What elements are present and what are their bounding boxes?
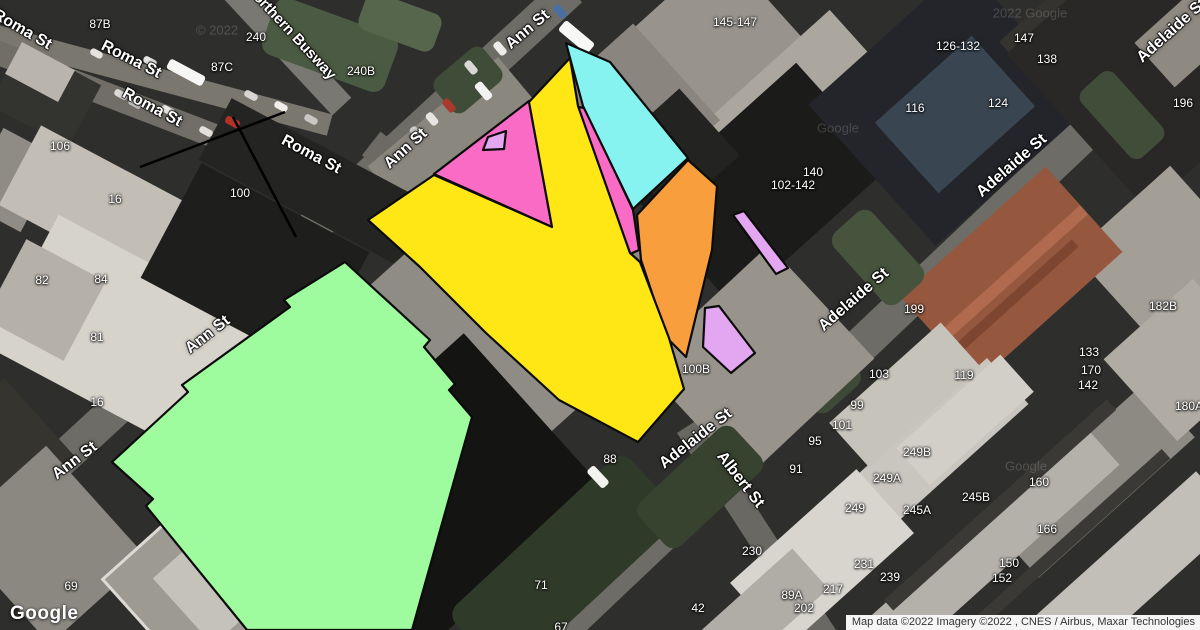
parcel-green[interactable] [112,262,472,630]
parcel-violet-pentagon[interactable] [703,306,755,373]
attribution-text: Map data ©2022 Imagery ©2022 , CNES / Ai… [852,616,1195,628]
google-logo[interactable]: Google [10,603,78,625]
satellite-map[interactable]: Google Map data ©2022 Imagery ©2022 , CN… [0,0,1200,630]
parcel-overlay [0,0,1200,630]
boundary-line [233,117,296,237]
boundary-line [140,112,285,167]
parcel-violet-strip[interactable] [733,211,788,274]
attribution-bar: Map data ©2022 Imagery ©2022 , CNES / Ai… [846,615,1200,630]
